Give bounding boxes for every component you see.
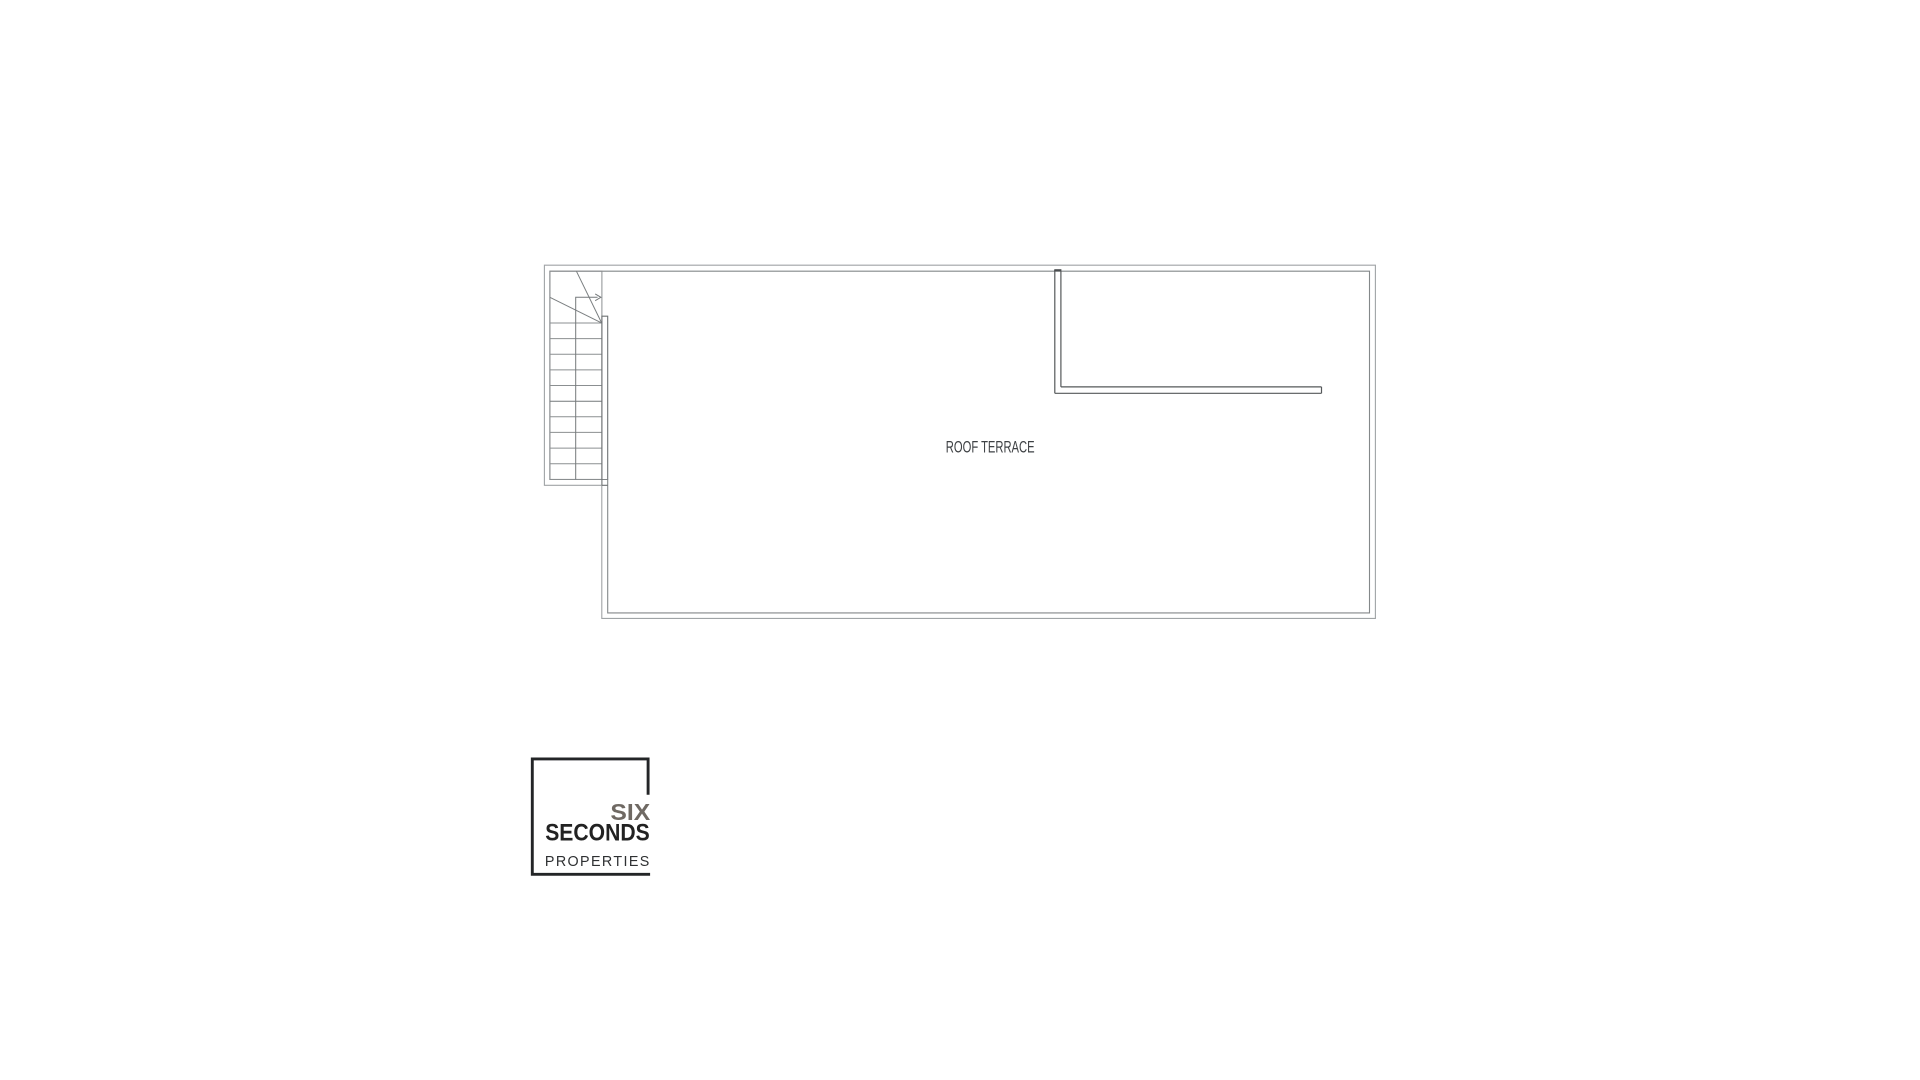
svg-text:PROPERTIES: PROPERTIES	[545, 854, 649, 870]
svg-text:SECONDS: SECONDS	[545, 821, 650, 847]
svg-text:ROOF TERRACE: ROOF TERRACE	[946, 438, 1035, 456]
